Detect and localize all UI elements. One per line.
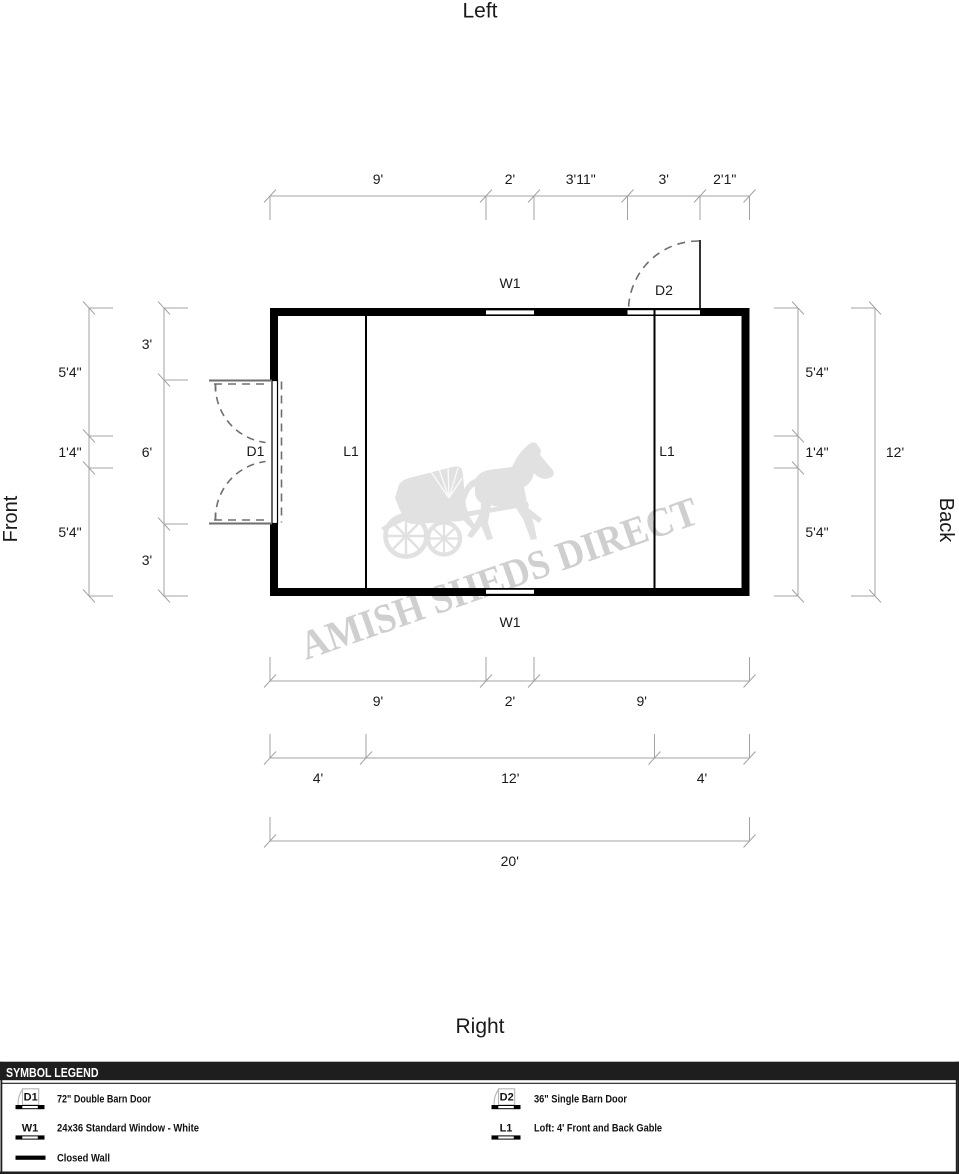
svg-text:Left: Left	[462, 0, 497, 23]
svg-text:1'4": 1'4"	[58, 444, 81, 460]
svg-text:W1: W1	[22, 1122, 39, 1134]
svg-text:SYMBOL LEGEND: SYMBOL LEGEND	[6, 1066, 99, 1080]
svg-text:D1: D1	[24, 1091, 38, 1103]
svg-text:Back: Back	[935, 498, 957, 543]
svg-text:1'4": 1'4"	[805, 444, 828, 460]
svg-text:W1: W1	[500, 275, 521, 291]
svg-text:9': 9'	[373, 693, 383, 709]
svg-text:9': 9'	[637, 693, 647, 709]
svg-text:D2: D2	[500, 1091, 514, 1103]
svg-text:6': 6'	[142, 444, 152, 460]
svg-text:5'4": 5'4"	[58, 524, 81, 540]
svg-text:12': 12'	[501, 770, 519, 786]
svg-text:L1: L1	[500, 1122, 513, 1134]
svg-text:Closed Wall: Closed Wall	[57, 1153, 110, 1165]
svg-text:24x36 Standard Window - White: 24x36 Standard Window - White	[57, 1123, 199, 1135]
svg-text:Right: Right	[455, 1015, 504, 1038]
svg-text:2'1": 2'1"	[713, 171, 736, 187]
svg-text:36" Single Barn Door: 36" Single Barn Door	[534, 1094, 628, 1106]
svg-text:3'11": 3'11"	[566, 171, 596, 187]
svg-text:D2: D2	[655, 282, 673, 298]
svg-text:Front: Front	[0, 495, 22, 542]
svg-text:D1: D1	[247, 443, 265, 459]
svg-text:2': 2'	[505, 693, 515, 709]
svg-text:5'4": 5'4"	[58, 364, 81, 380]
svg-text:20': 20'	[501, 853, 519, 869]
svg-text:72" Double Barn Door: 72" Double Barn Door	[57, 1094, 152, 1106]
svg-text:3': 3'	[659, 171, 669, 187]
svg-text:5'4": 5'4"	[805, 524, 828, 540]
svg-text:2': 2'	[505, 171, 515, 187]
svg-text:Loft: 4' Front and Back Gable: Loft: 4' Front and Back Gable	[534, 1123, 662, 1135]
svg-text:L1: L1	[343, 443, 359, 459]
svg-text:L1: L1	[659, 443, 675, 459]
svg-text:9': 9'	[373, 171, 383, 187]
svg-text:12': 12'	[886, 444, 904, 460]
svg-text:3': 3'	[142, 552, 152, 568]
svg-text:5'4": 5'4"	[805, 364, 828, 380]
svg-text:4': 4'	[313, 770, 323, 786]
svg-text:4': 4'	[697, 770, 707, 786]
svg-text:3': 3'	[142, 336, 152, 352]
svg-text:W1: W1	[500, 614, 521, 630]
